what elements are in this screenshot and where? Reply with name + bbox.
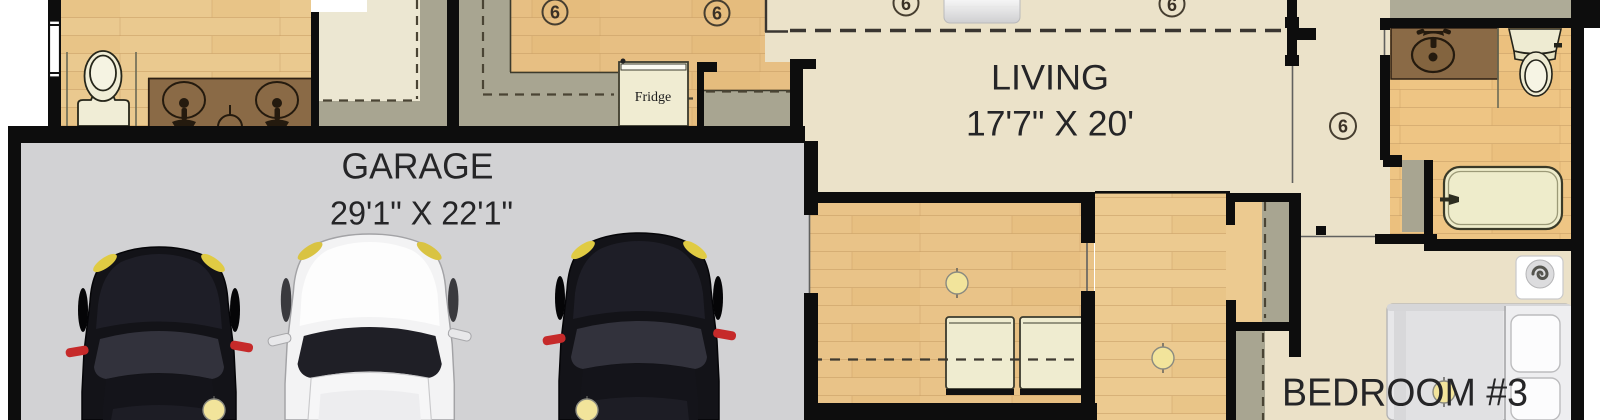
svg-text:LIVING: LIVING	[991, 59, 1109, 98]
svg-text:29'1" X 22'1": 29'1" X 22'1"	[330, 195, 513, 232]
svg-text:Fridge: Fridge	[635, 90, 672, 105]
svg-text:6: 6	[550, 3, 560, 23]
svg-text:6: 6	[1167, 0, 1177, 15]
svg-text:6: 6	[901, 0, 911, 14]
svg-text:17'7" X 20': 17'7" X 20'	[966, 105, 1134, 144]
svg-text:6: 6	[712, 4, 722, 24]
svg-text:6: 6	[1338, 117, 1348, 137]
svg-text:GARAGE: GARAGE	[342, 146, 494, 187]
svg-text:BEDROOM #3: BEDROOM #3	[1282, 372, 1528, 415]
